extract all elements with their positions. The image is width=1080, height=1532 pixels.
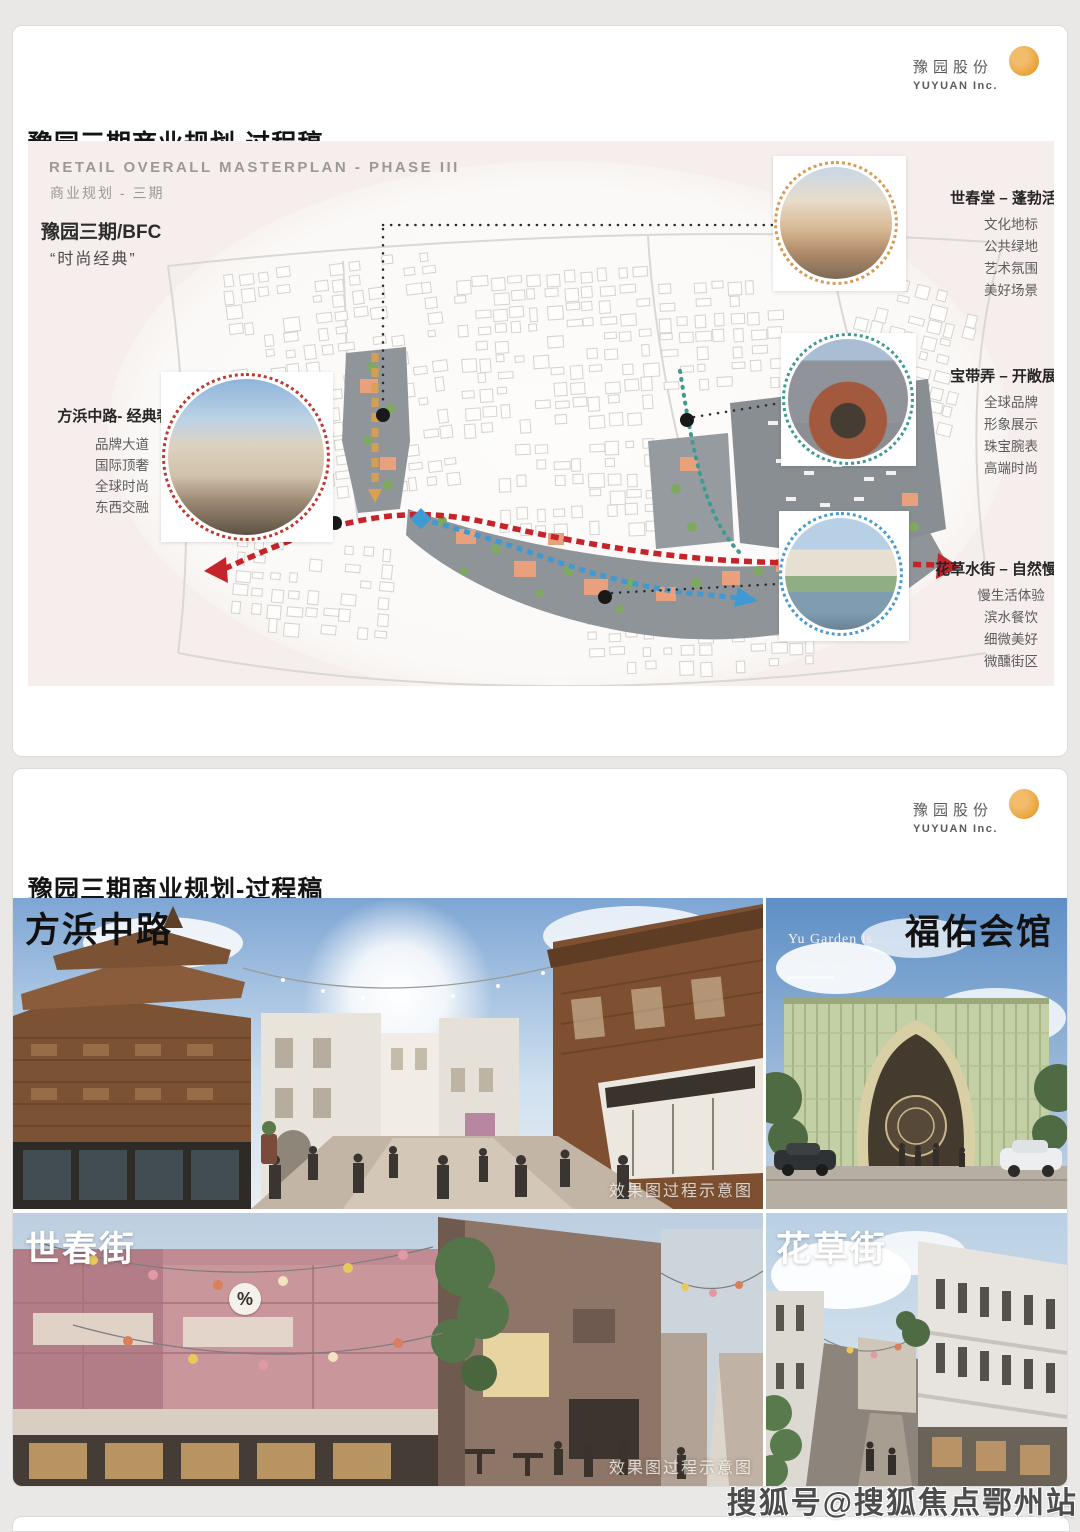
photo-huacao [779,512,903,636]
render-shichun: % 世春街 效果图过程示意图 [13,1213,763,1486]
callout-shichuntang: 世春堂 – 蓬勃活力 文化地标 公共绿地 艺术氛围 美好场景 [911,187,1054,302]
callout-item: 美好场景 [911,280,1054,302]
callout-item: 微醺街区 [911,651,1054,673]
callout-baodai-title: 宝带弄 – 开敞展示 [911,365,1054,386]
callout-item: 珠宝腕表 [911,436,1054,458]
callout-huacao-title: 花草水街 – 自然慢生活 [911,558,1054,579]
render-label: 花草街 [776,1221,887,1272]
callout-item: 形象展示 [911,414,1054,436]
masterplan-panel: RETAIL OVERALL MASTERPLAN - PHASE III 商业… [28,141,1054,686]
project-tagline: “时尚经典” [50,245,137,269]
percent-cafe-sign: % [229,1283,261,1315]
shichuntang-photo-image [780,167,892,279]
yuyuan-logo: 豫园股份 YUYUAN Inc. [913,56,1023,102]
logo-cn: 豫园股份 [913,799,1023,820]
render-label: 世春街 [25,1221,136,1272]
callout-item: 艺术氛围 [911,258,1054,280]
masterplan-title-cn: 商业规划 - 三期 [50,183,164,203]
render-fangbin: 方浜中路 效果图过程示意图 [13,898,763,1209]
photo-shichuntang [774,161,898,285]
callout-huacao: 花草水街 – 自然慢生活 慢生活体验 滨水餐饮 细微美好 微醺街区 [911,558,1054,673]
callout-item: 滨水餐饮 [911,607,1054,629]
render-watermark: 效果图过程示意图 [609,1454,753,1478]
callout-item: 细微美好 [911,629,1054,651]
fangbin-photo-image [168,379,324,535]
caption-underline [788,976,834,979]
slide-renderings: 豫园股份 YUYUAN Inc. 豫园三期商业规划-过程稿 [12,768,1068,1487]
callout-shichuntang-title: 世春堂 – 蓬勃活力 [911,187,1054,208]
huacao-photo-image [785,518,897,630]
render-fuyou: Yu Garden is Enduring 福佑会馆 [766,898,1067,1209]
yu-garden-caption: Yu Garden is Enduring [788,930,873,979]
callout-baodai: 宝带弄 – 开敞展示 全球品牌 形象展示 珠宝腕表 高端时尚 [911,365,1054,480]
callout-item: 全球品牌 [911,392,1054,414]
logo-cn: 豫园股份 [913,56,1023,77]
baodai-photo-image [788,339,908,459]
caption-line1: Yu Garden is [788,932,873,947]
photo-fangbin [162,373,330,541]
logo-en: YUYUAN Inc. [913,80,1023,92]
render-label: 福佑会馆 [905,904,1053,955]
callout-item: 慢生活体验 [911,585,1054,607]
slide-masterplan: 豫园股份 YUYUAN Inc. 豫园三期商业规划-过程稿 [12,25,1068,757]
render-watermark: 效果图过程示意图 [609,1177,753,1201]
render-huacao: 花草街 [766,1213,1067,1486]
masterplan-title-en: RETAIL OVERALL MASTERPLAN - PHASE III [49,159,460,176]
callout-item: 高端时尚 [911,458,1054,480]
photo-baodai [782,333,914,465]
render-label: 方浜中路 [25,902,173,953]
sohu-watermark: 搜狐号@搜狐焦点鄂州站 [727,1478,1078,1522]
project-name: 豫园三期/BFC [41,217,161,244]
logo-en: YUYUAN Inc. [913,823,1023,835]
caption-line2: Enduring [788,951,848,966]
yuyuan-logo: 豫园股份 YUYUAN Inc. [913,799,1023,845]
callout-item: 公共绿地 [911,236,1054,258]
callout-item: 文化地标 [911,214,1054,236]
